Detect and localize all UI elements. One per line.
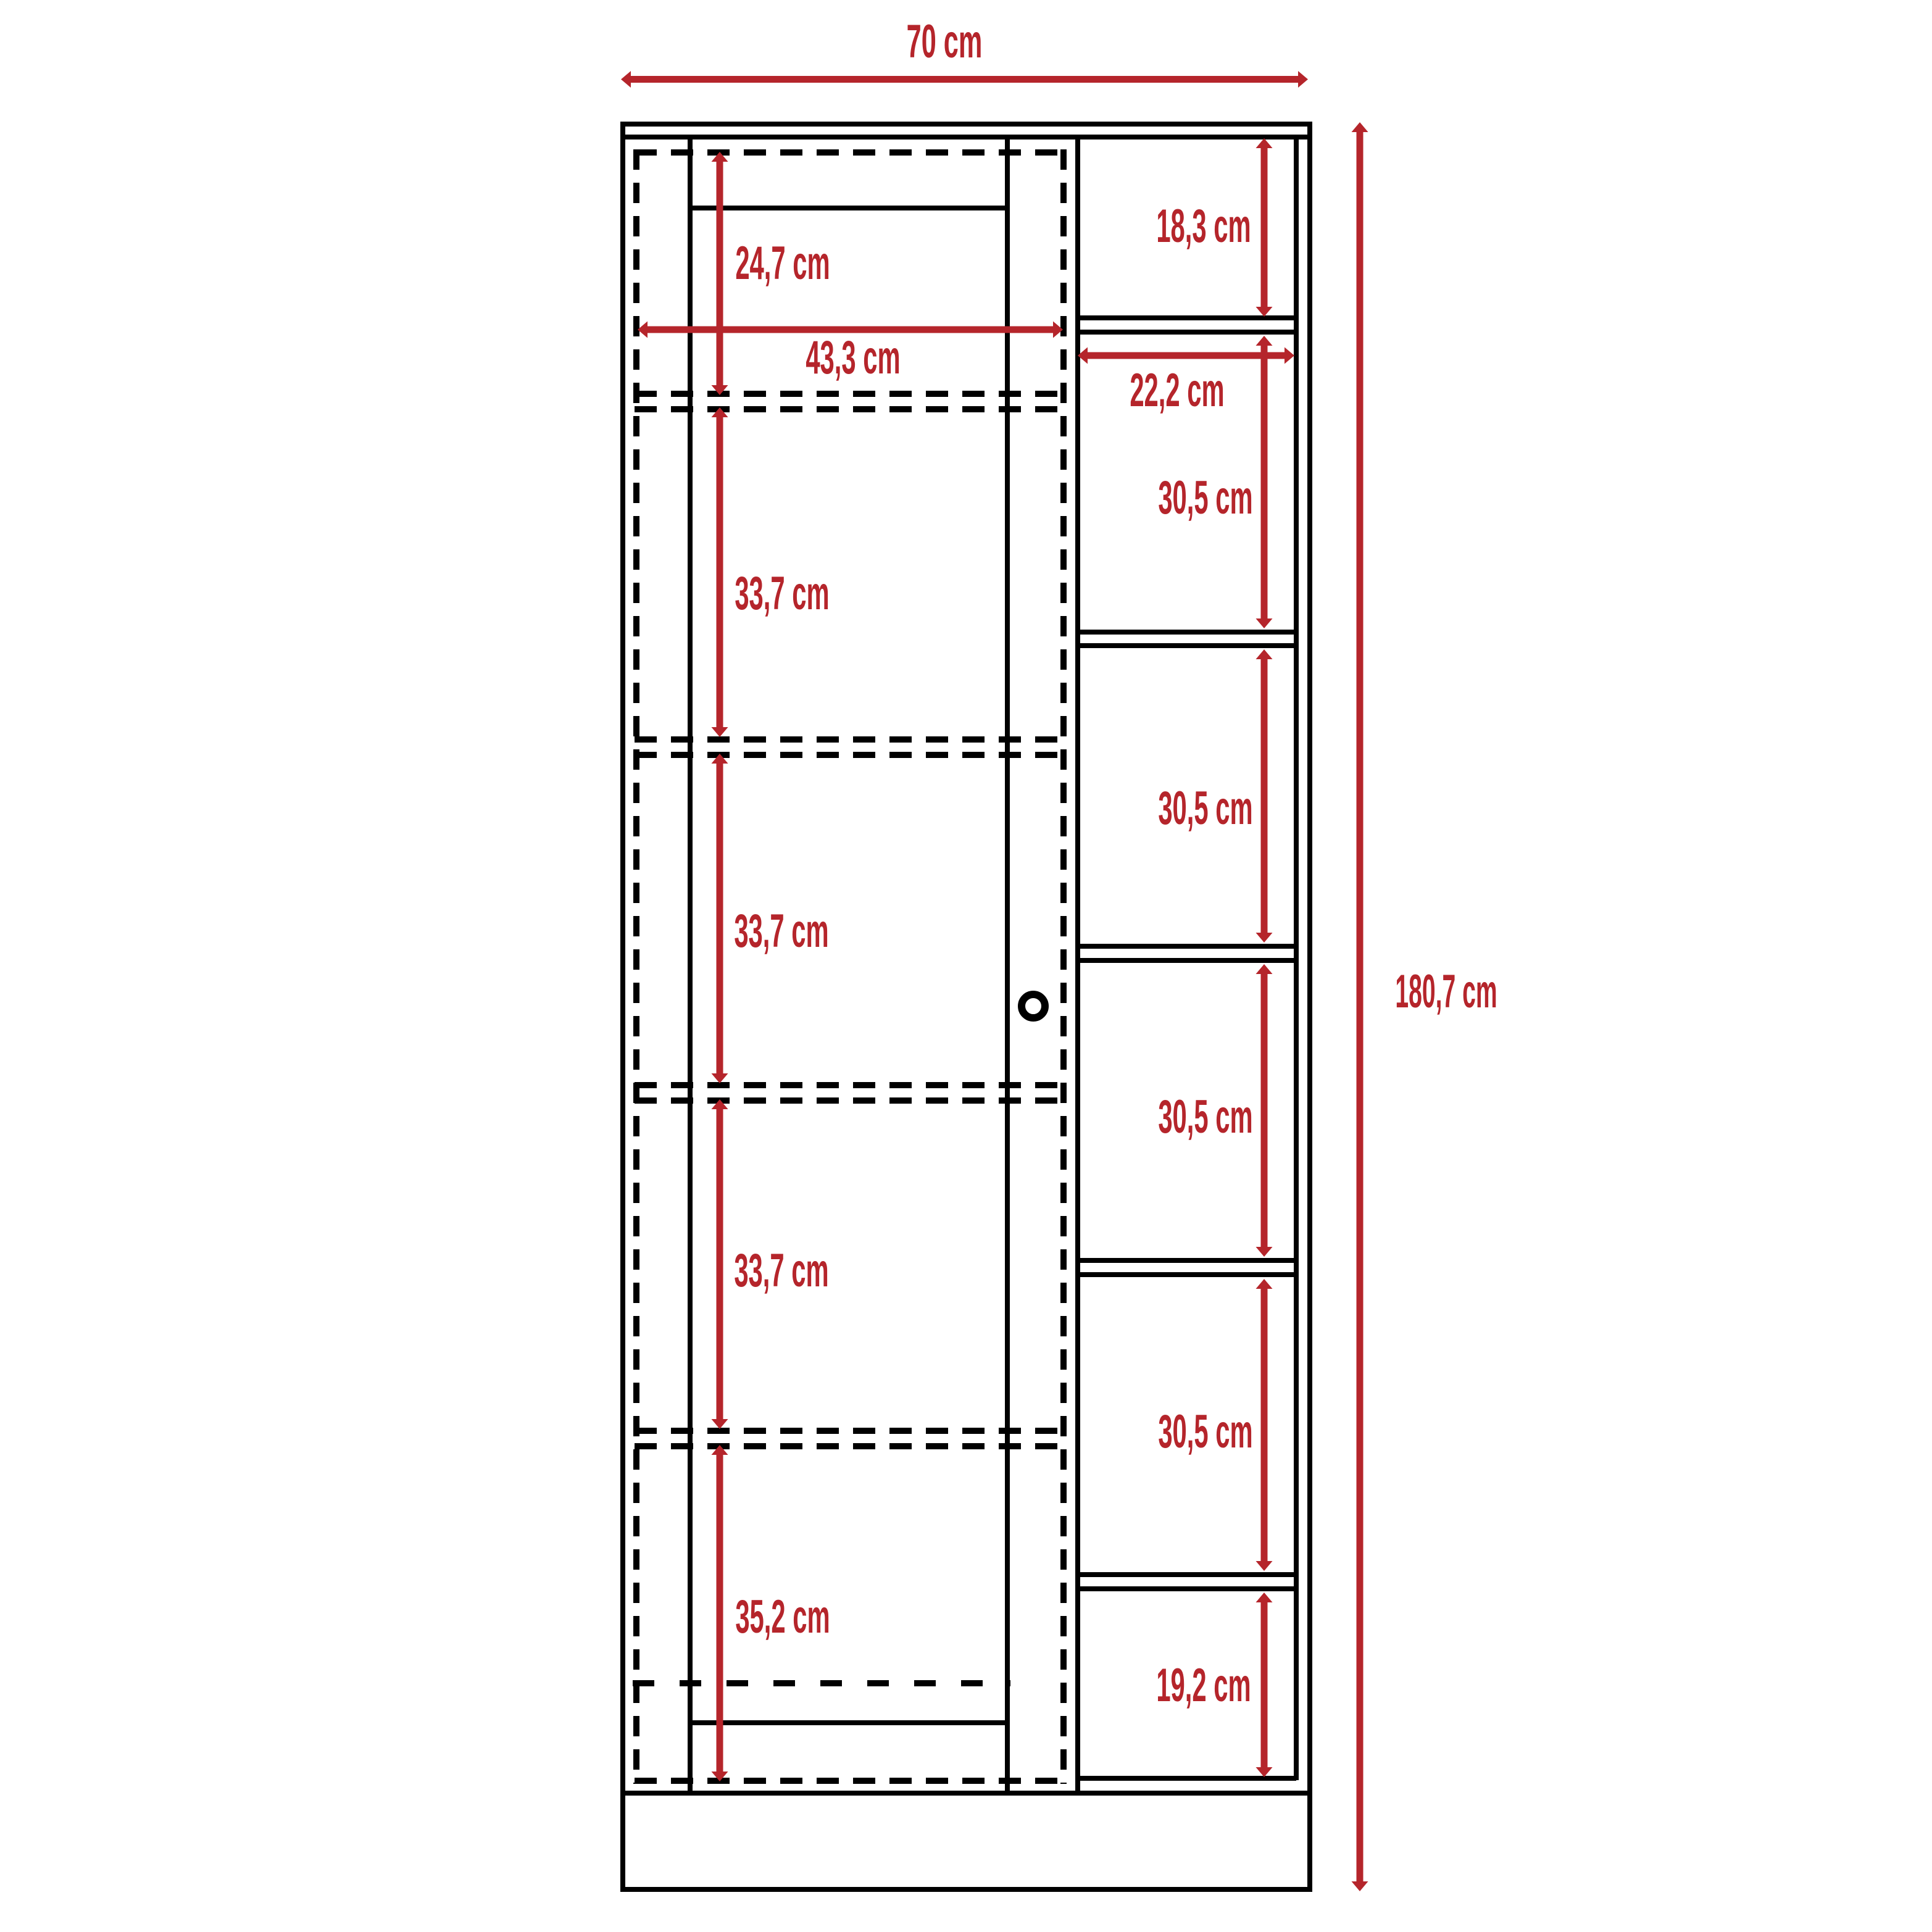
svg-text:43,3 cm: 43,3 cm — [806, 331, 900, 384]
svg-text:22,2 cm: 22,2 cm — [1130, 364, 1224, 417]
svg-text:30,5 cm: 30,5 cm — [1158, 781, 1252, 835]
svg-text:24,7 cm: 24,7 cm — [735, 236, 830, 289]
svg-text:33,7 cm: 33,7 cm — [734, 904, 828, 957]
svg-text:30,5 cm: 30,5 cm — [1158, 1090, 1252, 1143]
svg-text:30,5 cm: 30,5 cm — [1158, 1405, 1252, 1458]
svg-text:70 cm: 70 cm — [907, 15, 983, 68]
svg-text:30,5 cm: 30,5 cm — [1158, 471, 1252, 524]
svg-text:33,7 cm: 33,7 cm — [735, 567, 829, 620]
svg-text:18,3 cm: 18,3 cm — [1156, 199, 1251, 252]
svg-text:35,2 cm: 35,2 cm — [735, 1590, 830, 1643]
svg-text:19,2 cm: 19,2 cm — [1156, 1659, 1251, 1712]
svg-text:180,7 cm: 180,7 cm — [1395, 965, 1497, 1017]
svg-text:33,7 cm: 33,7 cm — [734, 1244, 828, 1297]
